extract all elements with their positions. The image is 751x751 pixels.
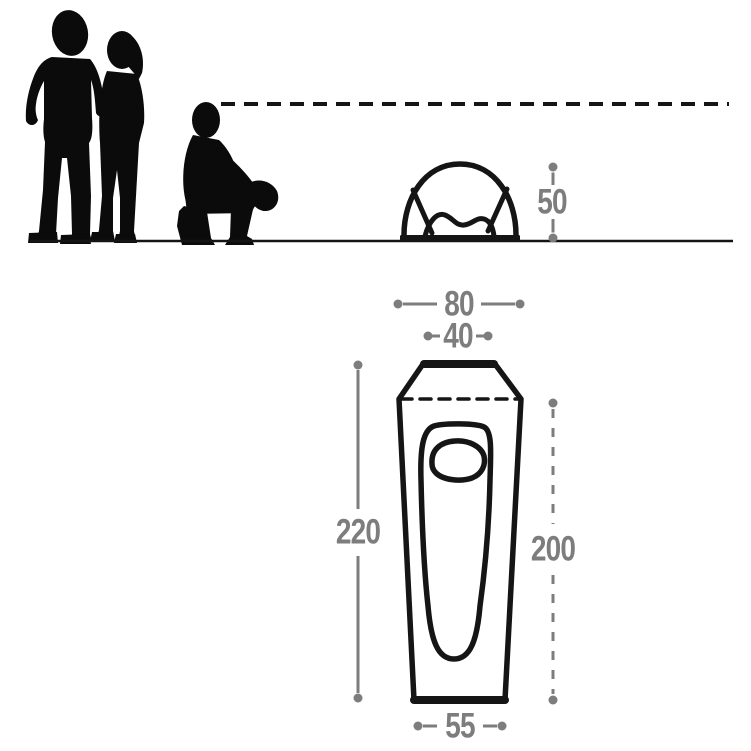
dim-dot	[516, 300, 525, 309]
dim-dot	[424, 332, 433, 341]
peak-width-label: 40	[443, 319, 473, 354]
tent-side-view	[400, 164, 520, 242]
standing-couple-silhouette	[26, 7, 144, 244]
dim-dot	[394, 300, 403, 309]
diagram-art	[0, 0, 751, 751]
tent-top-view	[399, 364, 521, 700]
tent-footprint-outline	[399, 364, 521, 700]
man-body	[26, 57, 105, 242]
inner-length-label: 200	[531, 532, 575, 567]
side-height-label: 50	[537, 185, 567, 220]
dim-dot	[354, 694, 363, 703]
dim-dot	[484, 332, 493, 341]
tent-dimension-diagram: 50 80 40 220 200 55	[0, 0, 751, 751]
man-foot-right	[60, 234, 91, 244]
hood-outline	[432, 441, 485, 480]
bottom-width-label: 55	[445, 709, 475, 744]
dim-dot	[354, 361, 363, 370]
dim-dot	[549, 399, 558, 408]
dim-dot	[549, 696, 558, 705]
man-head	[48, 7, 91, 59]
crouching-man-head	[192, 102, 220, 138]
dim-dot	[498, 722, 507, 731]
crouching-man-silhouette	[177, 102, 278, 245]
outer-length-label: 220	[336, 515, 380, 550]
woman-body	[96, 71, 144, 241]
dim-dot	[549, 163, 558, 172]
dim-dot	[549, 234, 558, 243]
tent-inner-wavy-line	[425, 214, 494, 236]
dim-dot	[414, 722, 423, 731]
tent-base-bar	[400, 235, 520, 242]
